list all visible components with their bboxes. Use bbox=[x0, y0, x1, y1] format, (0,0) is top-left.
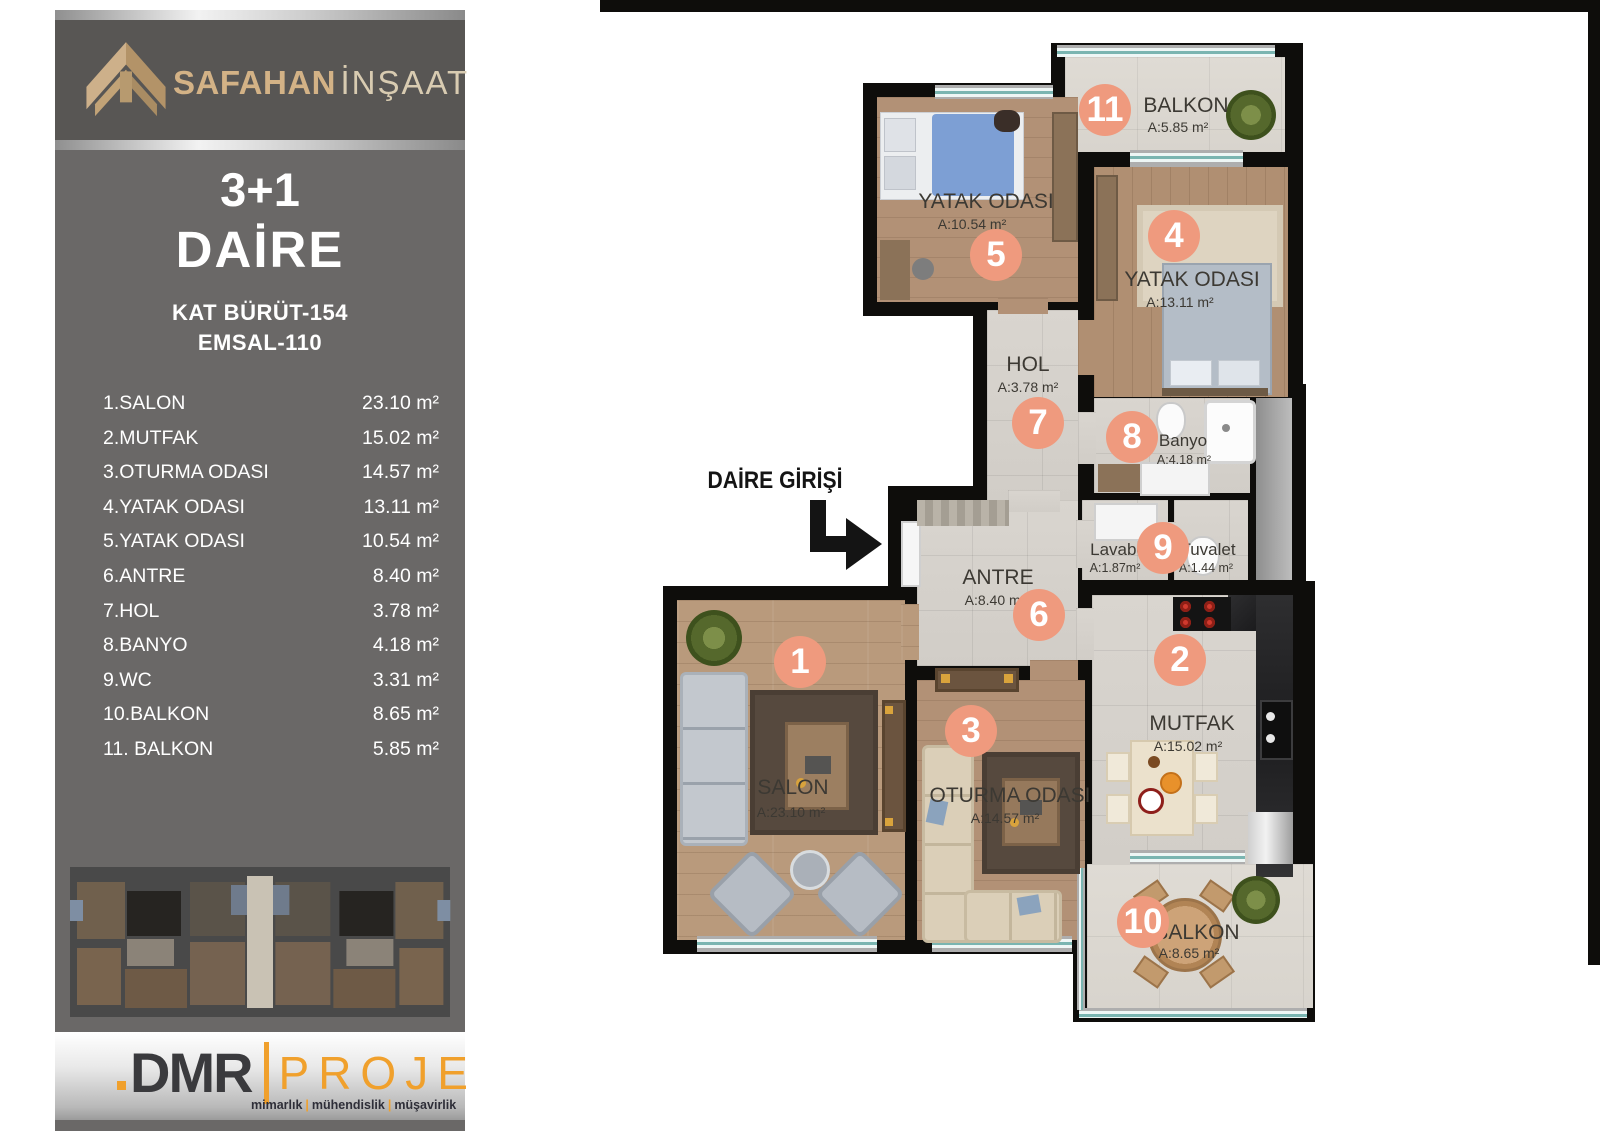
door-bedroom4 bbox=[1078, 320, 1096, 375]
list-item: 4.YATAK ODASI13.11 m² bbox=[103, 496, 439, 531]
door-bedroom5 bbox=[998, 298, 1048, 314]
safahan-logo-icon bbox=[83, 34, 169, 126]
room-area-value: 8.65 m² bbox=[373, 703, 439, 726]
area-balcony11: A:5.85 m² bbox=[1148, 119, 1209, 135]
door-kitchen bbox=[1076, 608, 1094, 660]
desk-bedroom5 bbox=[880, 240, 910, 300]
tagline-word: müşavirlik bbox=[394, 1098, 456, 1112]
laptop bbox=[805, 756, 831, 774]
dining-chair bbox=[1194, 794, 1218, 824]
apartment-entrance-door bbox=[901, 521, 921, 587]
label-balcony11: BALKON bbox=[1143, 94, 1228, 118]
room-area-value: 3.78 m² bbox=[373, 600, 439, 623]
label-bedroom4: YATAK ODASI bbox=[1124, 268, 1259, 292]
corner-sofa-horizontal bbox=[964, 890, 1062, 943]
room-number-badge-10: 10 bbox=[1117, 896, 1169, 948]
side-table bbox=[790, 850, 830, 890]
room-label: 7.HOL bbox=[103, 600, 159, 623]
plate bbox=[1138, 788, 1164, 814]
plant-living-room bbox=[686, 610, 742, 666]
area-lavatory: A:1.87m² bbox=[1090, 561, 1141, 575]
room-label: 11. BALKON bbox=[103, 738, 213, 761]
headboard-bedroom4 bbox=[1162, 388, 1268, 396]
room-number-badge-5: 5 bbox=[970, 229, 1022, 281]
list-item: 7.HOL3.78 m² bbox=[103, 600, 439, 635]
list-item: 2.MUTFAK15.02 m² bbox=[103, 427, 439, 462]
room-area-value: 13.11 m² bbox=[363, 496, 439, 519]
area-hall: A:3.78 m² bbox=[998, 379, 1059, 395]
room-label: 4.YATAK ODASI bbox=[103, 496, 245, 519]
plant-balcony10 bbox=[1232, 876, 1280, 924]
stove-burner bbox=[1204, 601, 1215, 612]
sidebar: SAFAHAN İNŞAAT 3+1 DAİRE KAT BÜRÜT-154 E… bbox=[55, 10, 465, 1131]
label-entry-hall: ANTRE bbox=[962, 566, 1033, 590]
brand-secondary: İNŞAAT bbox=[340, 64, 469, 101]
room-area-value: 3.31 m² bbox=[373, 669, 439, 692]
pillow bbox=[1170, 360, 1212, 386]
bathroom-sink bbox=[1140, 462, 1210, 496]
floor-plan: DAİRE GİRİŞİ SALON A:23.10 m² MUTFAK A:1… bbox=[600, 0, 1600, 1131]
thumbnail-right-unit bbox=[268, 867, 450, 1017]
brand-name: SAFAHAN İNŞAAT bbox=[173, 64, 469, 102]
room-number-badge-6: 6 bbox=[1013, 589, 1065, 641]
door-hall-entry bbox=[1008, 490, 1060, 512]
room-area-value: 15.02 m² bbox=[362, 427, 439, 450]
room-number-badge-8: 8 bbox=[1106, 411, 1158, 463]
window-bedroom5 bbox=[935, 85, 1053, 99]
door-sitting-room bbox=[1030, 660, 1078, 682]
window-balcony10 bbox=[1130, 850, 1245, 864]
entrance-arrow-elbow bbox=[810, 536, 848, 552]
pillow bbox=[1218, 360, 1260, 386]
gross-area-stat: KAT BÜRÜT-154 bbox=[55, 300, 465, 326]
plan-frame-right bbox=[1588, 0, 1600, 965]
room-label: 9.WC bbox=[103, 669, 152, 692]
room-number-badge-1: 1 bbox=[774, 636, 826, 688]
entrance-arrow-head bbox=[846, 518, 882, 570]
list-item: 5.YATAK ODASI10.54 m² bbox=[103, 530, 439, 565]
list-item: 10.BALKON8.65 m² bbox=[103, 703, 439, 738]
entrance-label: DAİRE GİRİŞİ bbox=[708, 467, 843, 495]
area-bathroom: A:4.18 m² bbox=[1157, 453, 1211, 467]
pillow bbox=[884, 156, 916, 190]
brand-primary: SAFAHAN bbox=[173, 64, 336, 101]
plan-type-title: 3+1 bbox=[55, 162, 465, 217]
sideboard-handle bbox=[1004, 674, 1013, 683]
room-area-value: 10.54 m² bbox=[362, 530, 439, 553]
balcony11-railing bbox=[1057, 45, 1275, 57]
door-bathroom bbox=[1078, 412, 1096, 464]
desk-chair bbox=[912, 258, 934, 280]
sideboard-handle bbox=[941, 674, 950, 683]
dining-chair bbox=[1106, 752, 1130, 782]
list-item: 3.OTURMA ODASI14.57 m² bbox=[103, 461, 439, 496]
proje-logo-text: PROJE bbox=[279, 1046, 477, 1100]
page: SAFAHAN İNŞAAT 3+1 DAİRE KAT BÜRÜT-154 E… bbox=[0, 0, 1600, 1131]
dining-chair bbox=[1106, 794, 1130, 824]
balcony10-railing-left bbox=[1077, 868, 1085, 1010]
building-plan-thumbnail bbox=[70, 867, 450, 1017]
room-label: 3.OTURMA ODASI bbox=[103, 461, 269, 484]
fruit-bowl bbox=[1160, 772, 1182, 794]
room-label: 6.ANTRE bbox=[103, 565, 185, 588]
room-number-badge-4: 4 bbox=[1148, 210, 1200, 262]
dmr-tagline: mimarlık|mühendislik|müşavirlik bbox=[251, 1098, 456, 1112]
room-area-list: 1.SALON23.10 m² 2.MUTFAK15.02 m² 3.OTURM… bbox=[103, 392, 439, 773]
tv-unit-handle bbox=[885, 706, 893, 714]
sofa-living-room bbox=[680, 672, 748, 846]
area-wc: A:1.44 m² bbox=[1179, 561, 1233, 575]
pillow bbox=[884, 118, 916, 152]
label-hall: HOL bbox=[1006, 353, 1049, 377]
stove-burner bbox=[1180, 617, 1191, 628]
brand-header: SAFAHAN İNŞAAT bbox=[55, 20, 465, 140]
sink-faucet bbox=[1266, 712, 1275, 721]
tv-unit-handle bbox=[885, 818, 893, 826]
list-item: 9.WC3.31 m² bbox=[103, 669, 439, 704]
thumbnail-left-unit bbox=[70, 867, 252, 1017]
label-sitting-room: OTURMA ODASI bbox=[929, 784, 1090, 808]
plant-balcony11 bbox=[1226, 90, 1276, 140]
label-kitchen: MUTFAK bbox=[1149, 712, 1234, 736]
room-label: 10.BALKON bbox=[103, 703, 209, 726]
list-item: 11. BALKON5.85 m² bbox=[103, 738, 439, 773]
room-label: 5.YATAK ODASI bbox=[103, 530, 245, 553]
shower-drain bbox=[1222, 424, 1230, 432]
shower-tray bbox=[1204, 400, 1256, 464]
dmr-proje-footer: DMR PROJE mimarlık|mühendislik|müşavirli… bbox=[55, 1032, 465, 1120]
room-area-value: 23.10 m² bbox=[362, 392, 439, 415]
balcony10-railing-bottom bbox=[1079, 1008, 1307, 1018]
dmr-orange-dot bbox=[117, 1081, 126, 1090]
label-bedroom5: YATAK ODASI bbox=[918, 190, 1053, 214]
room-area-value: 8.40 m² bbox=[373, 565, 439, 588]
thumbnail-stair-core bbox=[247, 876, 274, 1008]
net-area-stat: EMSAL-110 bbox=[55, 330, 465, 356]
tagline-separator: | bbox=[385, 1098, 395, 1112]
service-shaft bbox=[1256, 398, 1292, 580]
area-balcony10: A:8.65 m² bbox=[1159, 945, 1220, 961]
accent-pillow bbox=[1017, 894, 1042, 916]
area-kitchen: A:15.02 m² bbox=[1154, 738, 1222, 754]
stove-burner bbox=[1204, 617, 1215, 628]
door-living-room bbox=[901, 604, 919, 660]
silver-divider-top bbox=[55, 10, 465, 20]
dmr-proje-logo: DMR PROJE bbox=[117, 1040, 477, 1105]
entry-closet bbox=[917, 500, 1009, 526]
room-number-badge-3: 3 bbox=[945, 705, 997, 757]
plan-kind-title: DAİRE bbox=[55, 220, 465, 279]
window-living-room bbox=[697, 936, 877, 952]
area-sitting-room: A:14.57 m² bbox=[971, 810, 1039, 826]
room-number-badge-9: 9 bbox=[1137, 522, 1189, 574]
plan-frame-top bbox=[600, 0, 1600, 12]
room-label: 8.BANYO bbox=[103, 634, 188, 657]
kitchen-sink bbox=[1260, 700, 1293, 760]
room-area-value: 4.18 m² bbox=[373, 634, 439, 657]
stove-burner bbox=[1180, 601, 1191, 612]
room-number-badge-11: 11 bbox=[1079, 84, 1131, 136]
list-item: 6.ANTRE8.40 m² bbox=[103, 565, 439, 600]
room-area-value: 14.57 m² bbox=[362, 461, 439, 484]
vanity-cabinet bbox=[1098, 464, 1140, 492]
throw-pillow bbox=[994, 110, 1020, 132]
dmr-orange-divider bbox=[264, 1042, 269, 1104]
refrigerator bbox=[1248, 812, 1293, 864]
area-bedroom4: A:13.11 m² bbox=[1146, 294, 1213, 310]
window-bedroom4 bbox=[1130, 150, 1243, 167]
room-label: 2.MUTFAK bbox=[103, 427, 198, 450]
area-living-room: A:23.10 m² bbox=[757, 804, 825, 820]
wardrobe-bedroom5 bbox=[1052, 112, 1078, 242]
tagline-word: mimarlık bbox=[251, 1098, 302, 1112]
dining-chair bbox=[1194, 752, 1218, 782]
room-number-badge-2: 2 bbox=[1154, 634, 1206, 686]
tagline-word: mühendislik bbox=[312, 1098, 385, 1112]
wardrobe-bedroom4 bbox=[1096, 175, 1118, 301]
room-label: 1.SALON bbox=[103, 392, 185, 415]
tagline-separator: | bbox=[302, 1098, 312, 1112]
dmr-logo-text: DMR bbox=[130, 1040, 252, 1105]
list-item: 8.BANYO4.18 m² bbox=[103, 634, 439, 669]
food-item bbox=[1148, 756, 1160, 768]
label-living-room: SALON bbox=[757, 776, 828, 800]
tv-unit bbox=[882, 700, 906, 832]
label-bathroom: Banyo bbox=[1159, 431, 1207, 451]
silver-divider-bottom bbox=[55, 140, 465, 150]
room-area-value: 5.85 m² bbox=[373, 738, 439, 761]
room-number-badge-7: 7 bbox=[1012, 397, 1064, 449]
list-item: 1.SALON23.10 m² bbox=[103, 392, 439, 427]
sink-faucet bbox=[1266, 734, 1275, 743]
